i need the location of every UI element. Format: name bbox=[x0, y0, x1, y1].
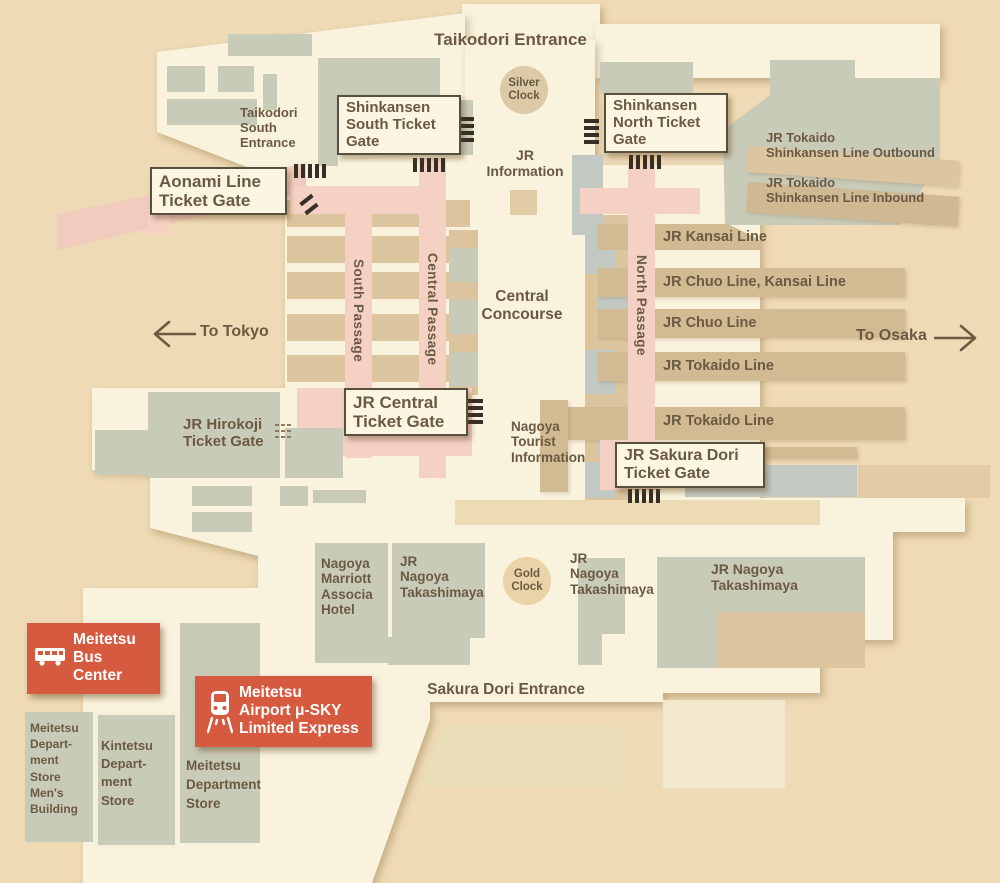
label-line: JR bbox=[400, 554, 484, 569]
corridor-band bbox=[455, 500, 820, 525]
label-central-passage: Central Passage bbox=[419, 243, 446, 375]
ticket-gate-icon bbox=[275, 424, 291, 438]
station-floor-map: Silver Clock Gold Clock Taikodori Entran… bbox=[0, 0, 1000, 883]
gold-clock-label: Gold bbox=[511, 568, 542, 581]
bus-center-box: Meitetsu Bus Center bbox=[27, 623, 160, 694]
ticket-gate-icon bbox=[629, 155, 661, 169]
label-jr-tokaido-line: JR Tokaido Line bbox=[663, 358, 774, 375]
label-meitetsu-mens: Meitetsu Depart- ment Store Men's Buildi… bbox=[30, 720, 79, 817]
label-line: Ticket Gate bbox=[159, 191, 278, 210]
silver-clock-label: Clock bbox=[508, 90, 539, 103]
arrow-right-icon bbox=[934, 322, 980, 352]
label-line: Ticket Gate bbox=[624, 465, 756, 483]
label-line: Store bbox=[101, 792, 153, 810]
label-line: Kintetsu bbox=[101, 737, 153, 755]
building-block bbox=[192, 512, 252, 532]
label-line: Nagoya bbox=[400, 569, 484, 584]
gate-box-shinkansen-north: Shinkansen North Ticket Gate bbox=[604, 93, 728, 153]
ticket-gate-icon bbox=[628, 489, 660, 503]
label-line: ment bbox=[101, 773, 153, 791]
label-line: Shinkansen bbox=[613, 98, 719, 115]
ticket-gate-icon bbox=[468, 399, 483, 424]
building-block bbox=[858, 465, 990, 498]
label-jr-information: JR Information bbox=[483, 148, 567, 180]
label-line: Nagoya bbox=[511, 419, 585, 434]
label-kintetsu: Kintetsu Depart- ment Store bbox=[101, 737, 153, 810]
label-line: Entrance bbox=[240, 136, 298, 151]
label-takashimaya-center: JR Nagoya Takashimaya bbox=[570, 551, 654, 597]
label-line: JR Central bbox=[353, 393, 459, 412]
building-block bbox=[228, 34, 312, 56]
label-line: Store bbox=[186, 795, 261, 814]
label-jr-kansai-line: JR Kansai Line bbox=[663, 229, 767, 246]
silver-clock-marker: Silver Clock bbox=[500, 66, 548, 114]
bus-icon bbox=[34, 645, 66, 669]
label-tourist-information: Nagoya Tourist Information bbox=[511, 419, 585, 465]
label-shinkansen-outbound: JR Tokaido Shinkansen Line Outbound bbox=[766, 131, 935, 161]
building-block bbox=[388, 637, 470, 665]
label-jr-hirokoji-gate: JR Hirokoji Ticket Gate bbox=[183, 416, 264, 450]
silver-clock-label: Silver bbox=[508, 77, 539, 90]
building-block bbox=[318, 96, 338, 166]
building-block bbox=[285, 428, 343, 478]
label-line: Ticket Gate bbox=[183, 433, 264, 450]
label-line: JR Tokaido bbox=[766, 176, 924, 191]
ticket-gate-icon bbox=[294, 164, 326, 178]
arrow-left-icon bbox=[150, 318, 196, 348]
label-line: South bbox=[240, 121, 298, 136]
label-line: Meitetsu bbox=[73, 631, 154, 649]
label-north-passage: North Passage bbox=[628, 246, 655, 366]
gold-clock-marker: Gold Clock bbox=[503, 557, 551, 605]
label-line: Hotel bbox=[321, 602, 373, 617]
label-to-osaka: To Osaka bbox=[856, 327, 927, 345]
label-takashimaya-east: JR Nagoya Takashimaya bbox=[711, 562, 798, 594]
gate-box-aonami: Aonami Line Ticket Gate bbox=[150, 167, 287, 215]
label-line: Depart- bbox=[30, 736, 79, 752]
label-takashimaya-west: JR Nagoya Takashimaya bbox=[400, 554, 484, 600]
passage-segment bbox=[148, 214, 170, 234]
label-line: JR Sakura Dori bbox=[624, 447, 756, 465]
building-block bbox=[449, 248, 478, 282]
label-line: Ticket Gate bbox=[353, 412, 459, 431]
building-block bbox=[95, 430, 150, 475]
label-line: Information bbox=[483, 164, 567, 180]
label-line: Takashimaya bbox=[400, 585, 484, 600]
label-line: Aonami Line bbox=[159, 172, 278, 191]
building-block bbox=[192, 486, 252, 506]
label-line: Concourse bbox=[462, 306, 582, 324]
label-line: Store bbox=[30, 769, 79, 785]
building-block bbox=[218, 66, 254, 92]
gate-box-jr-central: JR Central Ticket Gate bbox=[344, 388, 468, 436]
label-line: Shinkansen bbox=[346, 100, 452, 117]
airport-express-box: Meitetsu Airport μ-SKY Limited Express bbox=[195, 676, 372, 747]
label-line: Bus bbox=[73, 649, 154, 667]
label-line: JR Tokaido bbox=[766, 131, 935, 146]
label-jr-tokaido-line: JR Tokaido Line bbox=[663, 413, 774, 430]
label-shinkansen-inbound: JR Tokaido Shinkansen Line Inbound bbox=[766, 176, 924, 206]
label-line: Central Passage bbox=[425, 253, 440, 366]
label-line: Depart- bbox=[101, 755, 153, 773]
label-central-concourse: Central Concourse bbox=[462, 288, 582, 323]
label-line: Takashimaya bbox=[711, 578, 798, 594]
label-line: Taikodori bbox=[240, 106, 298, 121]
label-line: JR bbox=[483, 148, 567, 164]
label-line: Nagoya bbox=[570, 566, 654, 581]
label-line: Gate bbox=[346, 134, 452, 151]
label-line: Airport μ-SKY bbox=[239, 702, 366, 720]
label-taikodori-south-entrance: Taikodori South Entrance bbox=[240, 106, 298, 150]
train-icon bbox=[207, 690, 233, 734]
label-line: Takashimaya bbox=[570, 582, 654, 597]
label-meitetsu-dept: Meitetsu Department Store bbox=[186, 757, 261, 814]
label-line: Building bbox=[30, 801, 79, 817]
label-line: Central bbox=[462, 288, 582, 306]
label-to-tokyo: To Tokyo bbox=[200, 323, 269, 341]
building-block bbox=[318, 58, 440, 96]
information-counter bbox=[510, 190, 537, 215]
label-line: Center bbox=[73, 667, 154, 685]
label-line: ment bbox=[30, 752, 79, 768]
ticket-gate-icon bbox=[413, 158, 445, 172]
label-jr-chuo-kansai-line: JR Chuo Line, Kansai Line bbox=[663, 274, 846, 291]
label-line: Marriott bbox=[321, 571, 373, 586]
label-line: North Passage bbox=[634, 255, 649, 356]
building-block bbox=[280, 486, 308, 506]
label-line: Shinkansen Line Inbound bbox=[766, 191, 924, 206]
platform-strip bbox=[765, 447, 857, 459]
gold-clock-label: Clock bbox=[511, 581, 542, 594]
label-line: Shinkansen Line Outbound bbox=[766, 146, 935, 161]
label-line: Department bbox=[186, 776, 261, 795]
label-jr-chuo-line: JR Chuo Line bbox=[663, 315, 756, 332]
label-line: Limited Express bbox=[239, 720, 366, 738]
building-block bbox=[167, 66, 205, 92]
label-line: North Ticket bbox=[613, 115, 719, 132]
ticket-gate-icon bbox=[459, 117, 474, 142]
building-block bbox=[600, 62, 693, 93]
label-line: Meitetsu bbox=[239, 684, 366, 702]
label-line: JR Hirokoji bbox=[183, 416, 264, 433]
label-line: JR bbox=[570, 551, 654, 566]
building-block bbox=[578, 633, 602, 665]
label-line: JR Nagoya bbox=[711, 562, 798, 578]
label-south-passage: South Passage bbox=[345, 248, 372, 373]
label-taikodori-entrance: Taikodori Entrance bbox=[408, 30, 613, 49]
label-line: Tourist bbox=[511, 434, 585, 449]
label-line: South Passage bbox=[351, 259, 366, 362]
label-sakura-dori-entrance: Sakura Dori Entrance bbox=[400, 681, 612, 699]
gate-box-shinkansen-south: Shinkansen South Ticket Gate bbox=[337, 95, 461, 155]
label-line: Nagoya bbox=[321, 556, 373, 571]
building-block bbox=[313, 490, 366, 503]
label-line: Associa bbox=[321, 587, 373, 602]
label-marriott-hotel: Nagoya Marriott Associa Hotel bbox=[321, 556, 373, 618]
building-block bbox=[449, 352, 478, 386]
ticket-gate-icon bbox=[584, 119, 599, 144]
label-line: Meitetsu bbox=[186, 757, 261, 776]
building-block bbox=[717, 612, 865, 668]
label-line: Meitetsu bbox=[30, 720, 79, 736]
label-line: South Ticket bbox=[346, 117, 452, 134]
gate-box-jr-sakura-dori: JR Sakura Dori Ticket Gate bbox=[615, 442, 765, 488]
entrance-ramp bbox=[415, 725, 625, 789]
label-line: Men's bbox=[30, 785, 79, 801]
label-line: Information bbox=[511, 450, 585, 465]
label-line: Gate bbox=[613, 132, 719, 149]
entrance-ramp bbox=[663, 700, 785, 788]
